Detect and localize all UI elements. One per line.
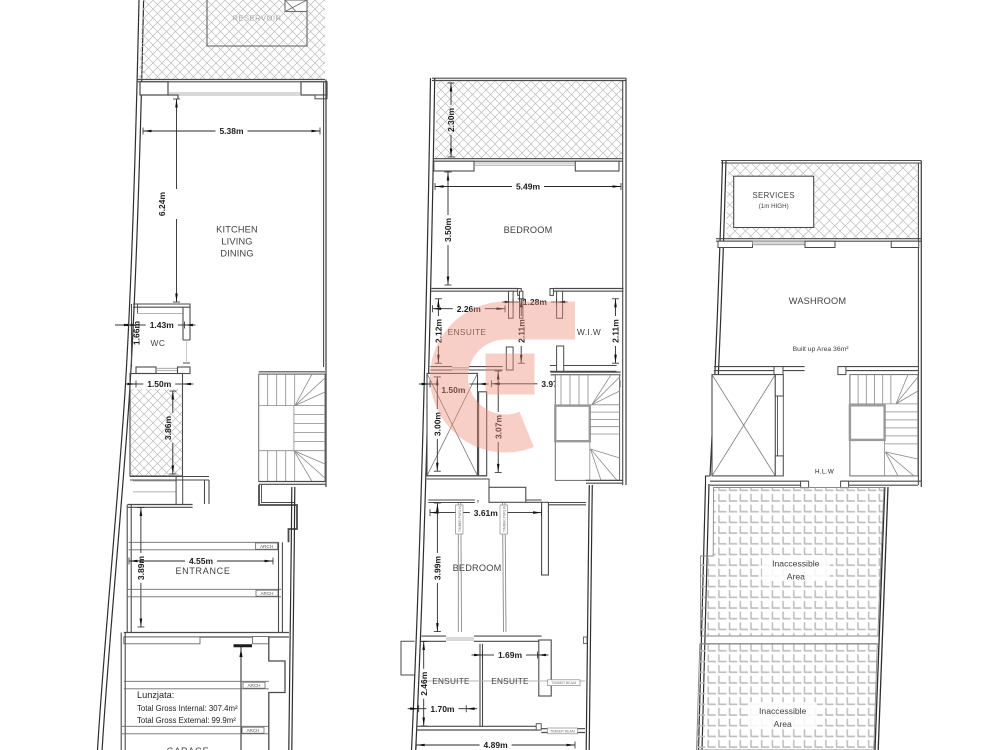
svg-text:4.89m: 4.89m <box>484 740 509 750</box>
svg-text:GARAGE: GARAGE <box>167 746 210 750</box>
svg-text:Area: Area <box>787 572 805 582</box>
svg-text:ENSUITE: ENSUITE <box>491 677 529 686</box>
svg-text:LIVING: LIVING <box>221 237 252 247</box>
svg-text:1.50m: 1.50m <box>147 379 172 389</box>
svg-text:3.61m: 3.61m <box>474 508 499 518</box>
svg-text:Lunzjata:: Lunzjata: <box>137 690 174 700</box>
svg-text:2.30m: 2.30m <box>446 108 456 133</box>
svg-text:Total Gross External: 99.9m²: Total Gross External: 99.9m² <box>137 716 236 725</box>
svg-text:5.49m: 5.49m <box>516 182 541 192</box>
svg-text:DINING: DINING <box>220 249 253 259</box>
svg-text:Inaccessible: Inaccessible <box>772 559 820 569</box>
svg-text:3.86m: 3.86m <box>163 416 173 441</box>
svg-text:H.L.W: H.L.W <box>815 469 834 476</box>
svg-text:4.55m: 4.55m <box>189 556 214 566</box>
svg-text:ARCH: ARCH <box>260 591 273 596</box>
svg-text:3.50m: 3.50m <box>443 218 453 243</box>
svg-text:ARCH: ARCH <box>246 728 259 733</box>
svg-text:Total Gross Internal: 307.4m²: Total Gross Internal: 307.4m² <box>137 704 238 713</box>
svg-text:BEDROOM: BEDROOM <box>504 225 553 235</box>
svg-text:ENTRANCE: ENTRANCE <box>175 566 230 576</box>
svg-text:1.66m: 1.66m <box>132 321 142 346</box>
svg-text:TIMBER BEAM: TIMBER BEAM <box>550 729 575 733</box>
svg-text:TIMBER BEAM: TIMBER BEAM <box>551 681 576 685</box>
svg-text:RESERVOIR: RESERVOIR <box>232 14 281 23</box>
svg-text:ENSUITE: ENSUITE <box>432 677 470 686</box>
svg-text:1.43m: 1.43m <box>150 320 175 330</box>
svg-text:2.11m: 2.11m <box>611 319 621 343</box>
svg-text:WASHROOM: WASHROOM <box>789 296 846 306</box>
svg-text:2.46m: 2.46m <box>419 671 429 696</box>
svg-text:Inaccessible: Inaccessible <box>759 706 807 716</box>
svg-text:WC: WC <box>151 338 166 348</box>
svg-text:W.I.W: W.I.W <box>577 327 601 337</box>
svg-text:TIMBER PURLIN: TIMBER PURLIN <box>502 505 506 532</box>
svg-text:SERVICES: SERVICES <box>752 191 795 200</box>
svg-text:Area: Area <box>774 719 792 729</box>
svg-text:BEDROOM: BEDROOM <box>453 563 502 573</box>
svg-text:ARCH: ARCH <box>247 683 260 688</box>
svg-text:5.38m: 5.38m <box>219 126 244 136</box>
svg-text:Built up Area 36m²: Built up Area 36m² <box>793 346 850 353</box>
svg-text:ARCH: ARCH <box>260 544 273 549</box>
svg-text:3.89m: 3.89m <box>136 556 146 581</box>
svg-text:1.69m: 1.69m <box>498 650 523 660</box>
svg-text:(1m HIGH): (1m HIGH) <box>759 203 789 210</box>
svg-text:3.99m: 3.99m <box>433 556 443 581</box>
svg-text:TIMBER PURLIN: TIMBER PURLIN <box>458 505 462 532</box>
svg-text:1.70m: 1.70m <box>430 704 455 714</box>
svg-text:KITCHEN: KITCHEN <box>216 225 258 235</box>
svg-text:6.24m: 6.24m <box>157 192 167 217</box>
